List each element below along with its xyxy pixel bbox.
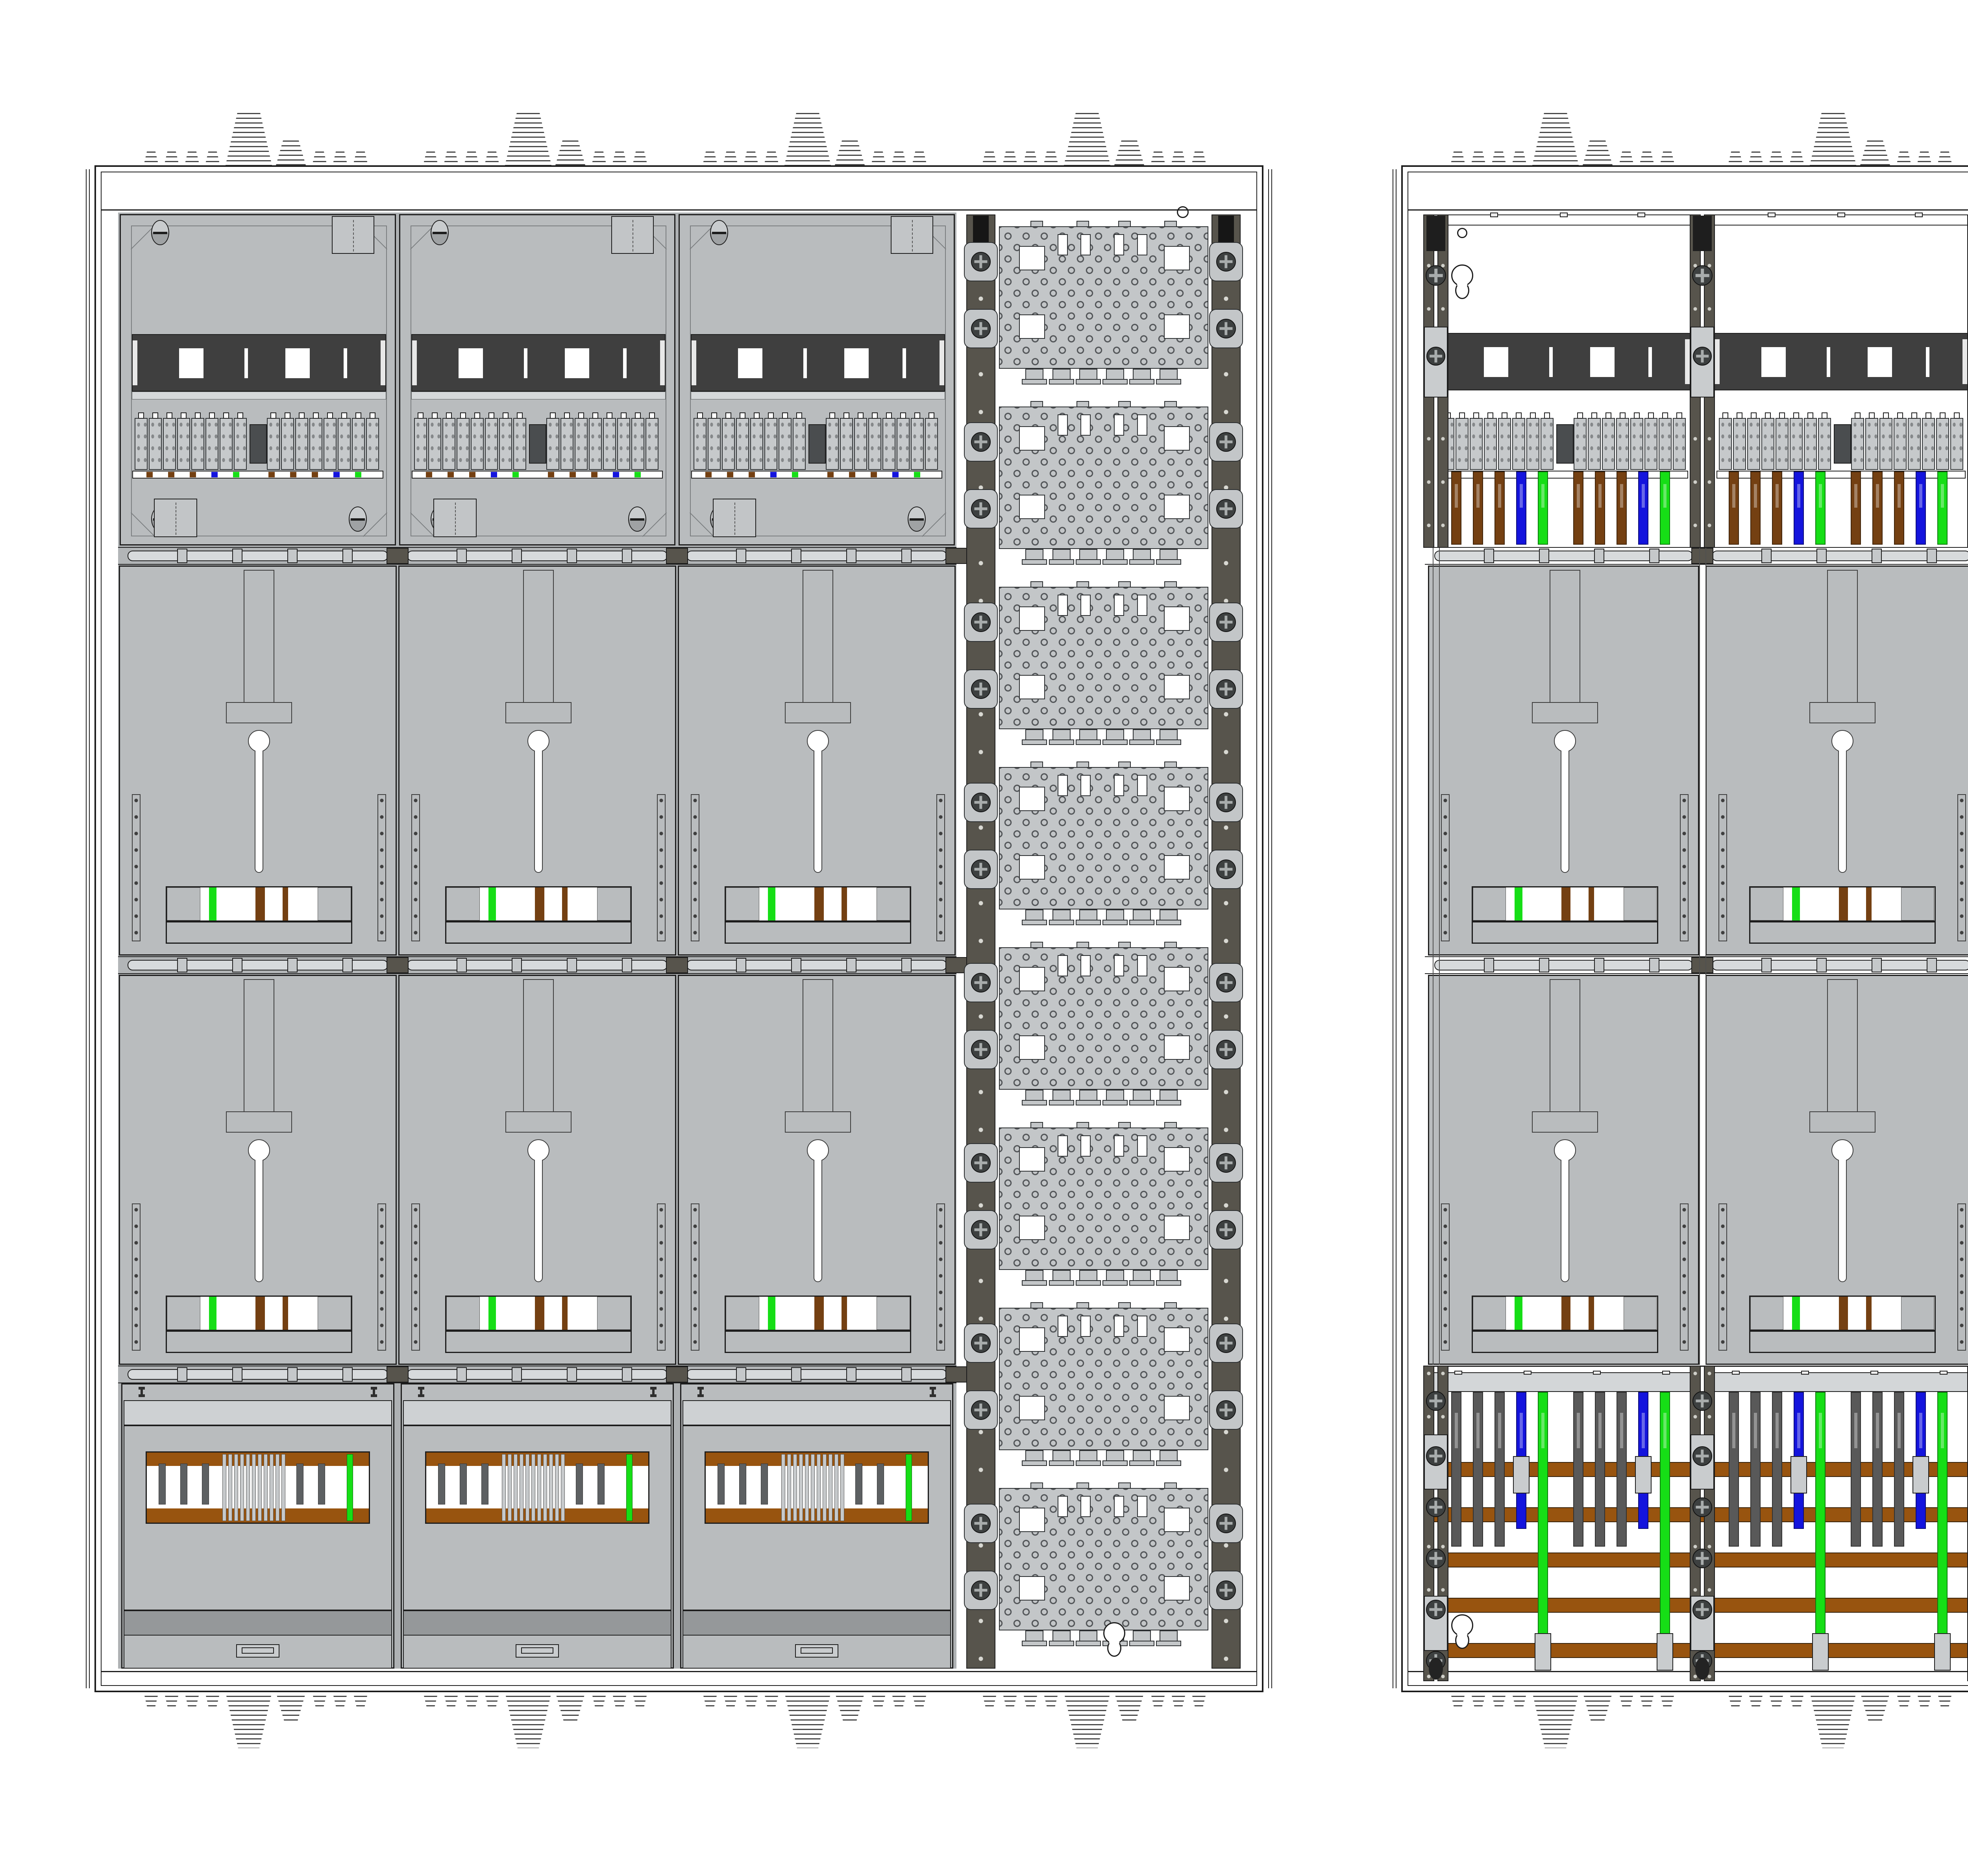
terminal-wire-marker [355,472,361,477]
meter-slot-joint [814,1155,821,1164]
phase-stripe [1589,1297,1594,1330]
cable-entry-tooth [723,1692,738,1710]
terminal-block-tab [341,412,347,419]
plate-hook-tab [1079,1270,1097,1281]
comb-slat [514,1454,518,1521]
comb-slat [811,1454,815,1521]
phase-stripe [1839,1297,1848,1330]
brown-feeder-wire [1872,471,1883,545]
oval-screw-icon [151,220,169,245]
phase-stripe [842,1297,847,1330]
terminal-block-tab [782,412,788,419]
terminal-block [513,418,526,470]
terminal-block [414,418,427,470]
meter-side-rail [1718,794,1727,941]
wire-sheen [1520,1413,1523,1448]
window-gap [496,1297,535,1330]
plate-top-tab [1118,581,1131,588]
plate-hook-tab [1133,369,1151,380]
rail-end-cap [1715,339,1720,384]
cable-entry-tooth [1450,148,1465,165]
terminal-block [826,418,839,470]
meter-screw-slot-stem [255,740,263,873]
plate-square-cutout [1164,1576,1190,1601]
comb-slat [270,1454,274,1521]
terminal-block-tab [697,412,703,419]
plate-slot-cutout [1137,1135,1147,1157]
meter-side-rail [132,794,141,941]
rail-cutout [844,348,869,378]
support-rail-clip [1593,1371,1601,1375]
cable-entry-tooth [1512,148,1527,165]
comb-slat [222,1454,226,1521]
terminal-bridge [808,424,826,464]
meter-hanger-slot [523,979,554,1112]
plate-hook-foot [1129,1641,1154,1646]
plate-hook-tab [1079,909,1097,920]
terminal-wire-marker [268,472,275,477]
window-gap [265,1297,283,1330]
wire-sheen [1819,484,1822,508]
plate-square-cutout [1164,1327,1190,1352]
terminal-block [309,418,322,470]
cable-entry-tooth [505,109,551,165]
window-gap [1872,887,1901,920]
phase-stripe [1839,887,1848,920]
terminal-block [1574,418,1587,470]
meter-screw-slot-stem [255,1149,263,1282]
plate-slot-cutout [1058,955,1068,976]
terminal-block-tab [1662,412,1668,419]
phillips-screw-icon [1216,612,1236,632]
wire-sheen [1476,1413,1480,1448]
wire-clamp [1513,1456,1530,1493]
cable-entry-tooth [353,1692,368,1710]
plate-hook-tab [1106,729,1124,740]
brown-feeder-wire [1617,471,1627,545]
terminal-wire-marker [827,472,834,477]
brown-feeder-wire [1851,471,1861,545]
meter-side-rail [132,1203,141,1351]
cable-entry-tooth [703,148,718,165]
wire-sheen [1498,1413,1501,1448]
plate-hook-tab [1106,369,1124,380]
cable-entry-tooth [1471,148,1486,165]
terminal-wire-marker [892,472,899,477]
wire-sheen [1941,1413,1944,1448]
separator-clip [1594,549,1604,563]
pe-stripe [209,887,217,920]
cable-entry-tooth [333,1692,348,1710]
cable-entry-tooth [1114,1692,1144,1721]
phillips-screw-icon [1692,1391,1712,1411]
plate-top-tab [1030,1122,1043,1128]
separator-clip [736,549,746,563]
terminal-block [897,418,910,470]
terminal-wire-marker [770,472,777,477]
plate-hook-tab [1079,549,1097,560]
terminal-block [442,418,455,470]
cable-entry-tooth [1043,148,1058,165]
pe-bar [626,1454,633,1521]
separator-clip [342,958,353,972]
plate-hook-foot [1022,920,1047,925]
wire-sheen [1620,484,1623,508]
wire-sheen [1577,1413,1580,1448]
cover-din-rail [132,334,386,392]
cable-entry-tooth [444,148,459,165]
plate-hook-foot [1049,559,1074,565]
terminal-block-tab [1751,412,1757,419]
plate-hook-foot [1049,379,1074,384]
window-gap [1594,887,1624,920]
cable-entry-tooth [1532,1692,1579,1748]
cable-entry-tooth [276,137,306,165]
rail-end-cap [381,340,385,385]
rail-slit [1549,347,1553,377]
cable-entry-tooth [1471,1692,1486,1710]
plate-hook-foot [1022,1641,1047,1646]
plate-top-tab [1118,401,1131,407]
plate-hook-foot [1076,920,1101,925]
meter-side-rail [1718,1203,1727,1351]
plate-hook-foot [1156,1641,1181,1646]
comb-slat [234,1454,238,1521]
plate-top-tab [1076,221,1089,227]
plate-hook-tab [1133,1270,1151,1281]
rail-slit [1926,347,1929,377]
plate-slot-cutout [1137,1316,1147,1337]
cable-entry-tooth [744,148,758,165]
plate-hook-tab [1106,1450,1124,1461]
phillips-screw-icon [1426,1391,1446,1411]
window-end-cell [167,1297,200,1330]
wire-sheen [1797,1413,1800,1448]
meter-side-rail [657,1203,666,1351]
wire-sheen [1776,1413,1779,1448]
window-end-cell [877,887,910,920]
plate-hook-tab [1052,1270,1071,1281]
din-rail [1437,333,1691,390]
terminal-block-tab [768,412,774,419]
terminal-block-tab [635,412,641,419]
separator-clip [457,1367,467,1382]
cable-entry-tooth [164,1692,179,1710]
cable-entry-tooth [1619,148,1634,165]
brown-feeder-wire [1595,471,1605,545]
wire-sheen [1776,484,1779,508]
cover-latch [332,216,374,254]
separator-clip [457,958,467,972]
terminal-block [163,418,176,470]
latch-seam [176,503,176,535]
meter-hanger-slot [1550,979,1580,1112]
terminal-block-tab [1883,412,1889,419]
phillips-screw-icon [1216,1220,1236,1240]
terminal-wire-marker [871,472,877,477]
terminal-block [560,418,573,470]
plate-top-tab [1076,581,1089,588]
phillips-screw-icon [1216,1040,1236,1059]
phillips-screw-icon [1693,347,1712,366]
terminal-block [764,418,777,470]
plate-hook-foot [1049,1641,1074,1646]
plate-hook-tab [1079,1630,1097,1641]
window-end-cell [726,1297,759,1330]
terminal-block [546,418,559,470]
plate-square-cutout [1019,606,1045,631]
frame-top-interior-line [101,209,1257,211]
terminal-block-tab [432,412,438,419]
terminal-block [1894,418,1907,470]
separator-clip [1927,549,1937,563]
separator-clip [1761,549,1772,563]
plate-hook-tab [1160,369,1178,380]
oval-screw-icon [710,220,728,245]
meter-slot-joint [535,746,542,755]
terminal-block [428,418,441,470]
terminal-bridge [529,424,546,464]
cable-entry-tooth [1150,1692,1165,1710]
plate-slot-cutout [1137,234,1147,255]
terminal-block [631,418,644,470]
window-gap [1848,1297,1866,1330]
rail-lower-strip [691,392,945,399]
comb-slat [525,1454,529,1521]
plate-hook-tab [1106,1270,1124,1281]
pe-stripe [209,1297,217,1330]
cable-entry-tooth [555,1692,585,1721]
plate-square-cutout [1019,1327,1045,1352]
plate-square-cutout [1019,495,1045,519]
terminal-block-tab [355,412,361,419]
separator-lock-block [666,957,688,973]
window-end-cell [318,1297,351,1330]
terminal-block-tab [237,412,243,419]
cable-entry-tooth [784,109,831,165]
pe-stripe [488,887,496,920]
top-strip-clip [1560,213,1568,217]
terminal-block-tab [503,412,509,419]
meter-terminal-window [166,886,352,922]
separator-clip [232,549,242,563]
cable-entry-tooth [703,1692,718,1710]
wire-sheen [1876,484,1879,508]
panel-clip-icon [371,1387,377,1397]
separator-clip [1539,958,1549,972]
phase-tab [481,1464,488,1504]
plate-square-cutout [1164,787,1190,811]
separator-clip [342,549,353,563]
plate-square-cutout [1164,1216,1190,1240]
plate-square-cutout [1164,246,1190,270]
window-end-cell [1473,887,1506,920]
plate-square-cutout [1019,314,1045,339]
meter-window-tray [725,1331,911,1353]
cable-entry-tooth [1728,1692,1743,1710]
cable-entry-tooth [633,1692,647,1710]
cable-entry-tooth [276,1692,306,1721]
cable-entry-tooth [464,148,479,165]
terminal-block [1470,418,1483,470]
plate-slot-cutout [1058,1496,1068,1517]
phillips-screw-icon [1216,319,1236,338]
plate-hook-tab [1025,729,1043,740]
cable-entry-tooth [1491,148,1506,165]
meter-hanger-foot [1532,702,1598,723]
terminal-block [1790,418,1803,470]
bottom-top-band [124,1400,392,1425]
cable-entry-tooth [1171,1692,1186,1710]
cable-entry-tooth [205,148,220,165]
meter-side-rail [1680,794,1689,941]
plate-hook-foot [1102,379,1128,384]
separator-lock-block [666,1366,688,1383]
plate-slot-cutout [1114,1135,1124,1157]
plate-hook-tab [1160,1090,1178,1101]
plate-hook-tab [1160,549,1178,560]
cable-entry-tooth [982,148,997,165]
plate-hook-foot [1076,379,1101,384]
meter-terminal-window [1472,1296,1658,1331]
window-end-cell [167,887,200,920]
terminal-block-tab [313,412,319,419]
meter-side-rail [377,794,386,941]
phillips-screw-icon [1426,265,1446,286]
terminal-wire-marker [613,472,619,477]
window-gap [1570,887,1588,920]
meter-panel [1705,566,1968,956]
terminal-block-tab [299,412,305,419]
support-rail-clip [1524,1371,1531,1375]
wire-sheen [1919,484,1922,508]
cable-entry-tooth [1810,109,1856,165]
meter-terminal-window [1749,886,1936,922]
comb-slat [543,1454,547,1521]
plate-slot-cutout [1080,955,1091,976]
terminal-block-tab [578,412,584,419]
plate-slot-cutout [1114,234,1124,255]
window-gap [216,1297,255,1330]
meter-panel [1428,975,1699,1365]
plate-hook-foot [1156,920,1181,925]
wire-sheen [1919,1413,1922,1448]
cable-entry-tooth [871,1692,886,1710]
terminal-block-tab [929,412,934,419]
phillips-screw-icon [1216,793,1236,812]
plate-hook-foot [1102,559,1128,565]
terminal-block-tab [914,412,920,419]
terminal-wire-marker [290,472,296,477]
cable-entry-tooth [464,1692,479,1710]
panel-clip-icon [697,1387,704,1397]
wire-sheen [1577,484,1580,508]
terminal-block [205,418,218,470]
terminal-wire-marker [849,472,855,477]
plate-hook-tab [1052,729,1071,740]
wire-sheen [1732,1413,1735,1448]
terminal-block [925,418,938,470]
terminal-block-tab [517,412,523,419]
terminal-block-tab [1765,412,1771,419]
cable-entry-tooth [505,1692,551,1748]
plate-hook-tab [1160,729,1178,740]
terminal-wire-marker [211,472,218,477]
terminal-wire-marker [914,472,920,477]
plate-hook-foot [1076,739,1101,745]
meter-hanger-foot [226,1111,292,1133]
window-gap [1783,887,1792,920]
rail-end-cap [1685,339,1690,384]
rail-end-cap [133,340,137,385]
phase-stripe [842,887,847,920]
comb-slat [793,1454,797,1521]
window-gap [1800,1297,1839,1330]
terminal-wire-marker [749,472,755,477]
wire-sheen [1476,484,1480,508]
plate-top-tab [1118,1302,1131,1309]
terminal-block [338,418,351,470]
plate-square-cutout [1019,1576,1045,1601]
rail-slit [903,348,906,378]
plate-square-cutout [1019,1508,1045,1532]
meter-side-rail [657,794,666,941]
phillips-screw-icon [1216,1514,1236,1533]
separator-clip [567,549,577,563]
plate-slot-cutout [1114,414,1124,436]
terminal-block-tab [166,412,172,419]
terminal-block-tab [872,412,878,419]
comb-slat [246,1454,250,1521]
plate-slot-cutout [1080,595,1091,616]
window-end-cell [318,887,351,920]
meter-side-rail [1957,794,1966,941]
plate-hook-tab [1025,1270,1043,1281]
support-rail-clip [1870,1371,1878,1375]
phillips-screw-icon [971,1580,991,1600]
terminal-block-tab [1530,412,1536,419]
plate-top-tab [1118,1482,1131,1489]
plate-top-tab [1164,942,1177,948]
cable-entry-tooth [1023,1692,1038,1710]
profile-anchor-block [1693,216,1712,251]
plate-top-tab [1030,1302,1043,1309]
terminal-block [1659,418,1672,470]
phase-tab [761,1464,768,1504]
phillips-screw-icon [971,1400,991,1420]
plate-hook-foot [1156,1460,1181,1466]
phillips-screw-icon [971,432,991,452]
frame-top-interior-line [1408,209,1968,211]
meter-window-tray [166,922,352,944]
window-end-cell [1624,887,1657,920]
plate-square-cutout [1164,1396,1190,1420]
terminal-block-tab [1869,412,1875,419]
rail-cutout [1761,347,1786,377]
cable-entry-tooth [1002,148,1017,165]
brown-feeder-wire [1494,471,1505,545]
bottom-dark-band [403,1610,671,1636]
plate-slot-cutout [1114,595,1124,616]
terminal-block [882,418,895,470]
cable-entry-tooth [226,1692,272,1748]
plate-slot-cutout [1137,414,1147,436]
plate-slot-cutout [1137,955,1147,976]
terminal-block-tab [740,412,745,419]
meter-side-rail [936,1203,945,1351]
separator-clip [287,958,298,972]
terminal-block [267,418,280,470]
